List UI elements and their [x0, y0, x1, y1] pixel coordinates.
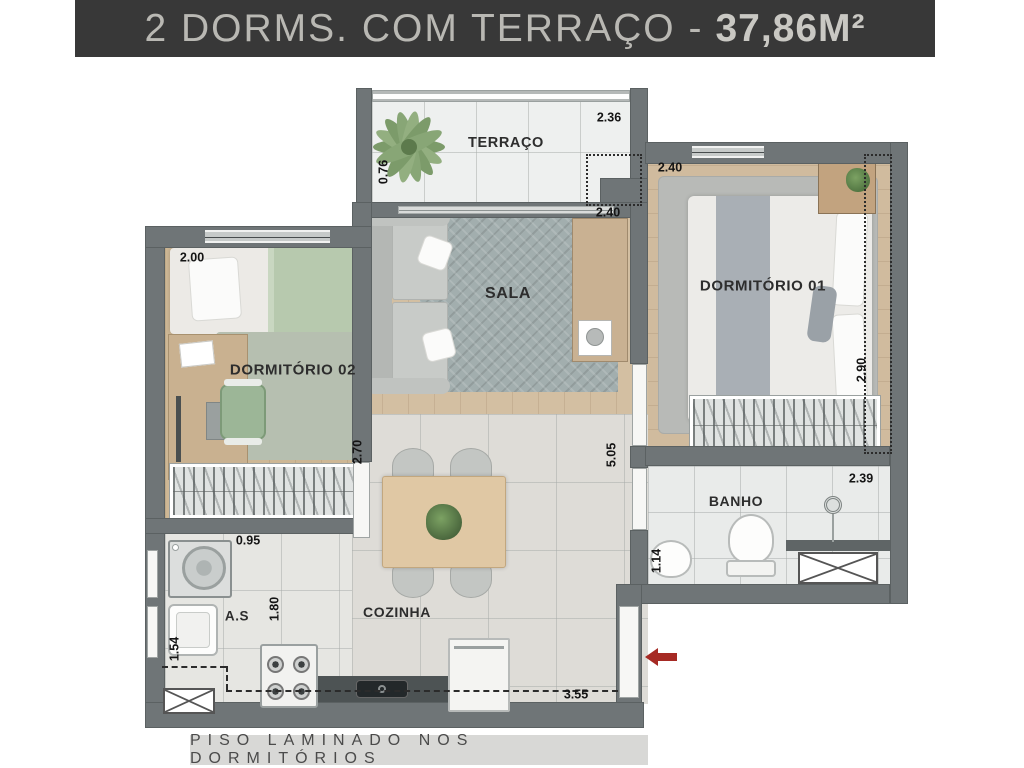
- footer-note: PISO LAMINADO NOS DORMITÓRIOS: [190, 735, 648, 765]
- dim-dorm2-width: 2.00: [170, 250, 214, 265]
- as-window: [147, 550, 158, 598]
- dim-terraco-depth: 0.76: [376, 150, 391, 194]
- wall: [645, 446, 890, 466]
- dim-cozinha-width: 3.55: [554, 687, 598, 702]
- refrigerator: [448, 638, 510, 712]
- banho-door: [632, 468, 647, 530]
- sala-label: SALA: [485, 285, 531, 303]
- toilet-tank: [726, 560, 776, 577]
- washer-drum: [182, 546, 226, 590]
- shower-partition: [786, 540, 890, 551]
- dim-sala-width: 2.40: [586, 205, 630, 220]
- dim-cozinha-length: 5.05: [604, 433, 619, 477]
- wall: [616, 584, 890, 604]
- sofa-armrest: [366, 378, 450, 394]
- dorm2-label: DORMITÓRIO 02: [230, 362, 356, 379]
- dim-as-height: 1.54: [167, 627, 182, 671]
- dim-terraco-width: 2.36: [587, 110, 631, 125]
- toilet-bowl: [728, 514, 774, 564]
- bed-pillow: [188, 256, 242, 321]
- dorm2-blanket: [268, 248, 362, 334]
- banho-label: BANHO: [709, 493, 763, 509]
- dorm1-label: DORMITÓRIO 01: [700, 278, 826, 295]
- as-boundary-dashed: [226, 666, 228, 690]
- dorm1-dim-dashed: [864, 154, 892, 454]
- wall: [890, 142, 908, 604]
- dim-banho-width: 2.39: [839, 471, 883, 486]
- console-vase: [586, 328, 604, 346]
- as-window: [147, 606, 158, 658]
- floor-plan: TERRAÇO SALA DORMITÓRIO 01 DORMITÓRIO 02…: [0, 0, 1024, 768]
- washer-button: [172, 544, 179, 551]
- dorm2-window: [205, 230, 330, 243]
- cozinha-label: COZINHA: [363, 604, 431, 620]
- as-label: A.S: [225, 609, 249, 624]
- dorm1-window: [692, 146, 764, 158]
- sliding-door: [398, 206, 614, 214]
- dim-dorm1-depth: 2.90: [854, 348, 869, 392]
- chair-armrest: [224, 438, 262, 445]
- dorm1-door: [632, 364, 647, 446]
- entrance-door: [619, 606, 639, 698]
- dorm2-wardrobe: [170, 464, 358, 518]
- shower-stem: [832, 514, 834, 542]
- desk-chair: [220, 384, 266, 440]
- dim-dorm1-width: 2.40: [648, 160, 692, 175]
- shower-head-icon: [824, 496, 842, 514]
- desk-shelf: [176, 396, 181, 462]
- dim-dorm2-depth: 2.70: [350, 430, 365, 474]
- dorm1-blanket: [716, 196, 770, 422]
- door-swing-dashed: [586, 154, 642, 206]
- shower-box: [798, 552, 878, 584]
- entrance-arrow-icon: [644, 646, 678, 668]
- terraco-label: TERRAÇO: [468, 135, 544, 151]
- bed-pillow: [832, 211, 869, 307]
- desk-notebook: [179, 340, 215, 367]
- chair-armrest: [224, 379, 262, 386]
- as-box: [163, 688, 215, 714]
- stove: [260, 644, 318, 708]
- dim-as-width: 0.95: [226, 533, 270, 548]
- table-plant: [426, 504, 462, 540]
- wall: [630, 202, 648, 364]
- dim-as-depth: 1.80: [267, 587, 282, 631]
- wall: [630, 530, 648, 586]
- wall: [145, 702, 644, 728]
- dim-banho-depth: 1.14: [649, 539, 664, 583]
